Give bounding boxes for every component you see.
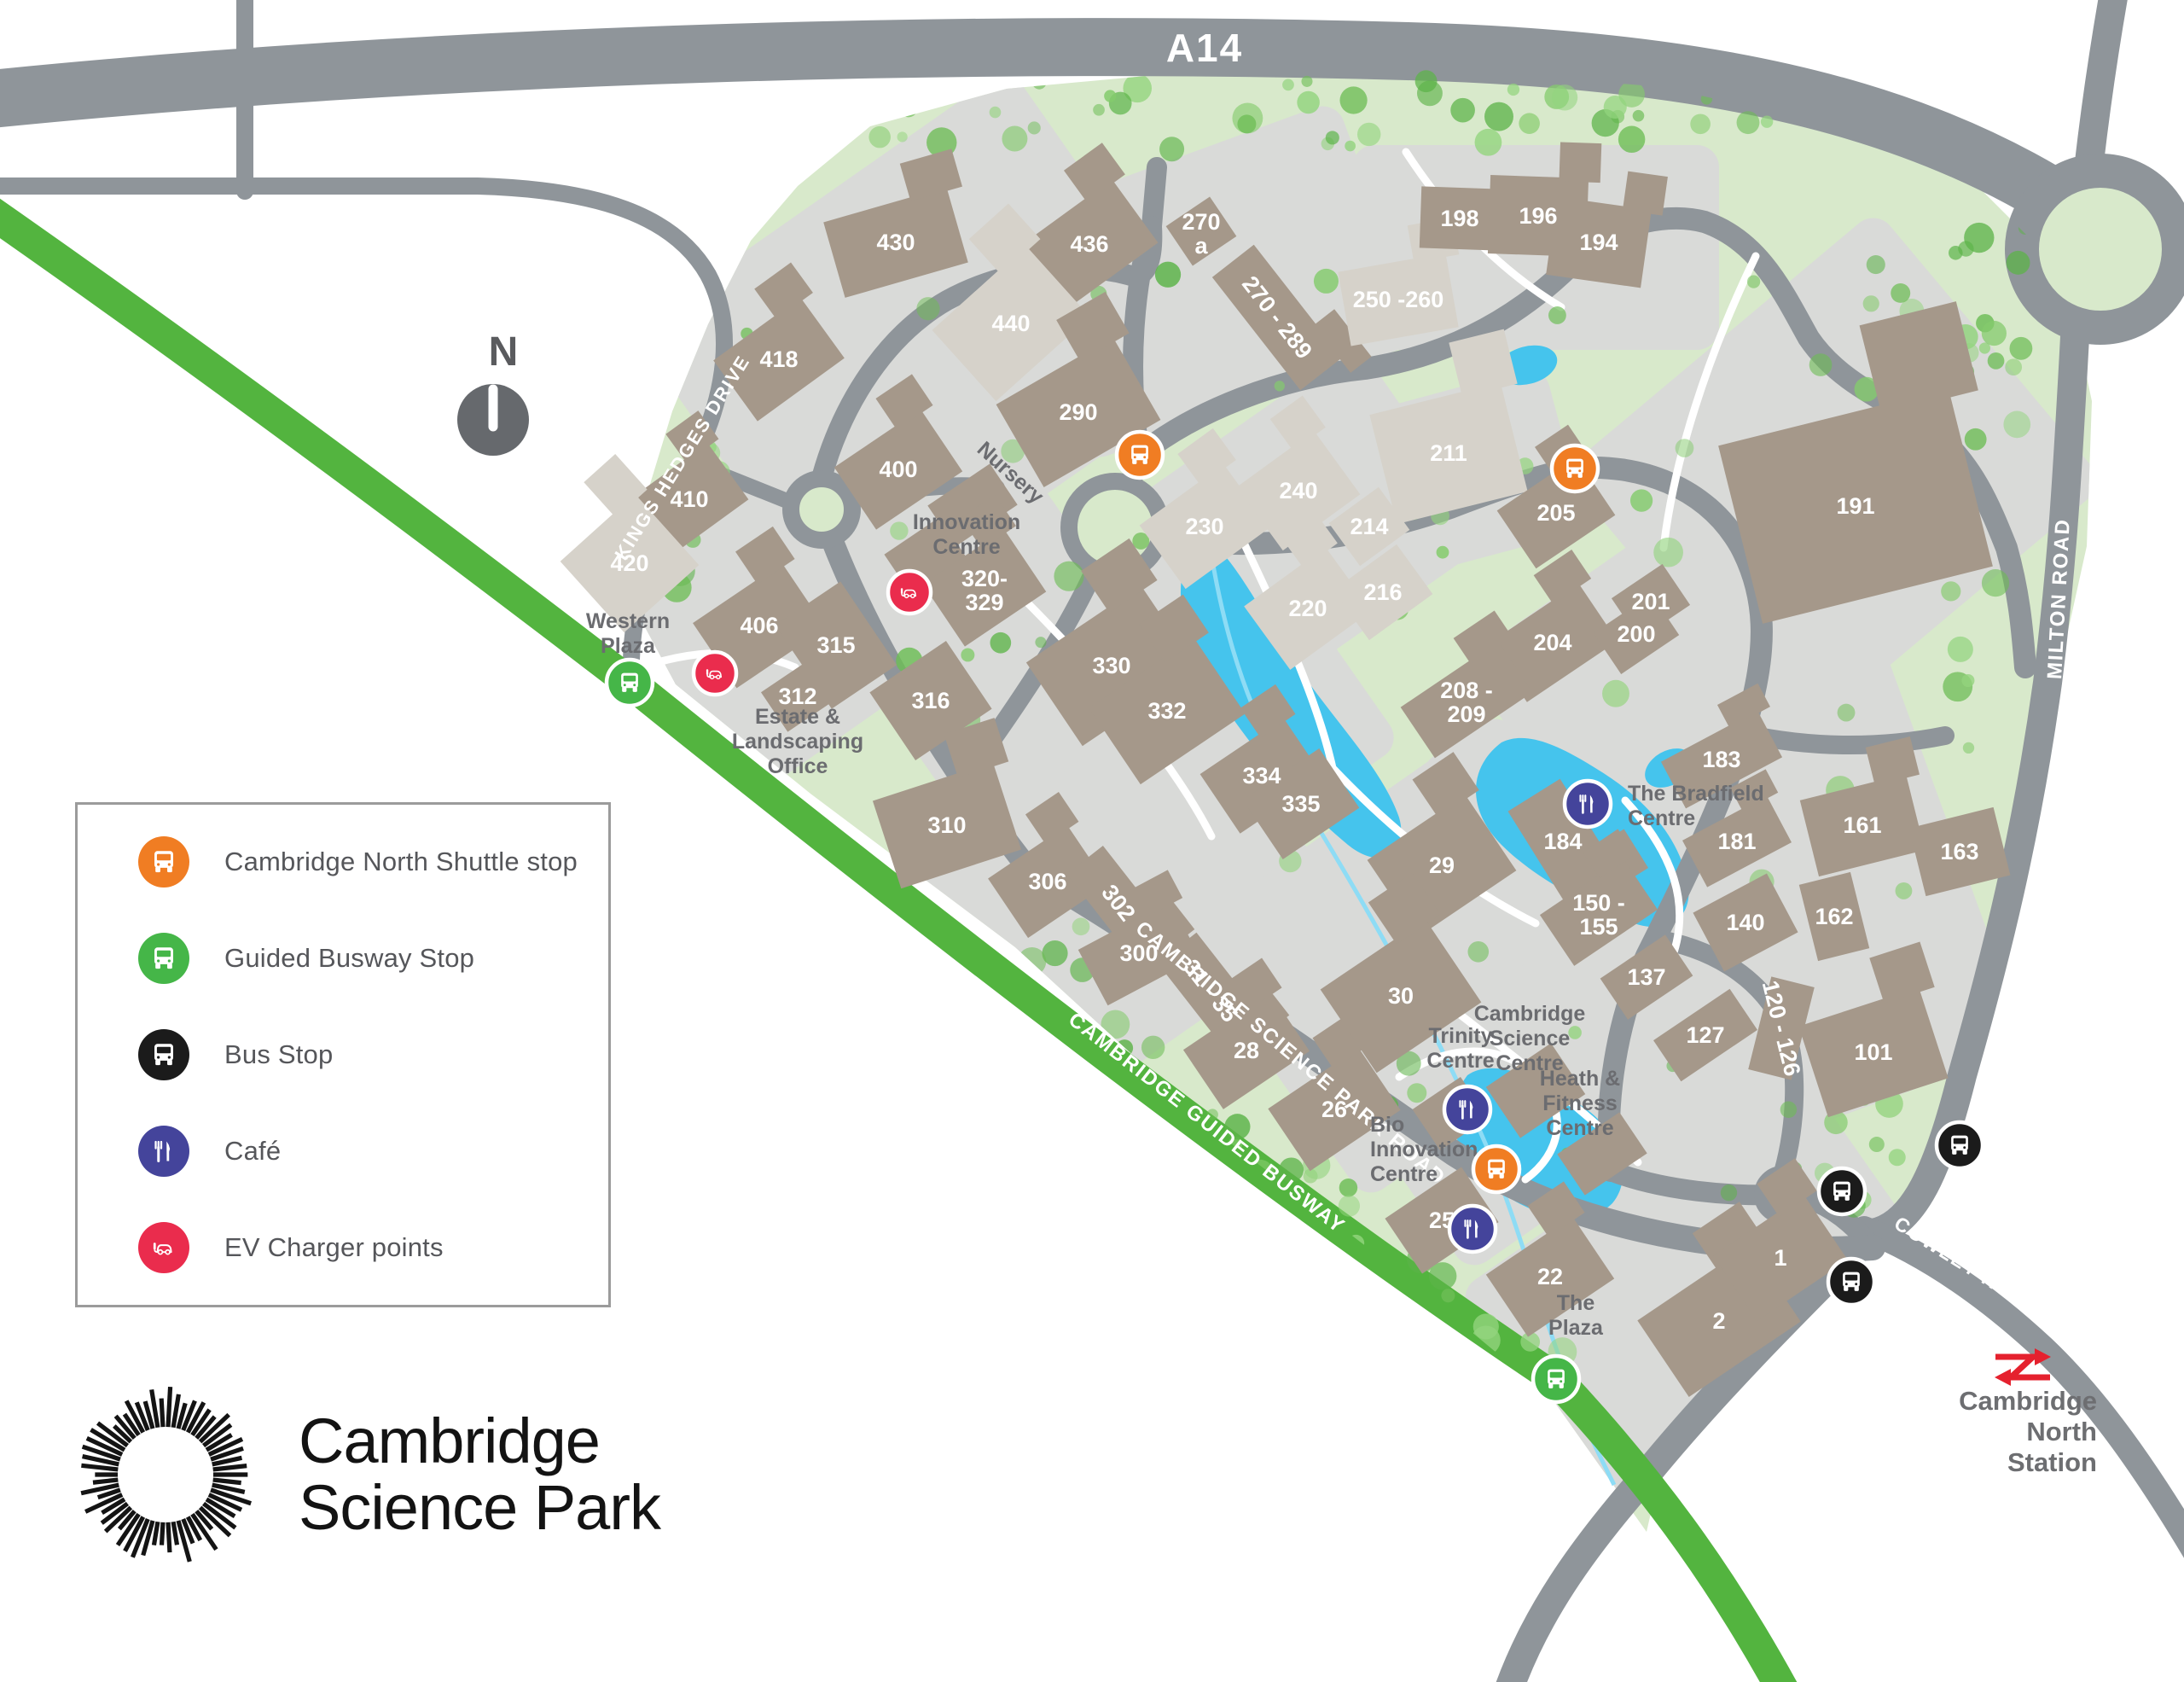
building-label: 140 <box>1726 910 1764 935</box>
building-label: 29 <box>1429 853 1455 878</box>
building-label: 161 <box>1843 812 1881 838</box>
bus-stop-icon <box>136 1027 192 1083</box>
cambridge-science-park-logo: Cambridge Science Park <box>67 1376 660 1574</box>
station-label: CambridgeNorthStation <box>1959 1386 2097 1477</box>
legend-item-cafe: Café <box>136 1123 608 1179</box>
shuttle-stop-icon <box>1473 1146 1519 1192</box>
building-label: 162 <box>1815 904 1853 929</box>
building-label: 137 <box>1627 964 1665 990</box>
building-label: 430 <box>876 230 915 255</box>
building-label: 201 <box>1631 589 1670 614</box>
building-label: 127 <box>1686 1022 1724 1048</box>
building-label: 22 <box>1537 1264 1563 1289</box>
building-label: 198 <box>1440 206 1478 231</box>
cafe-icon <box>1565 781 1611 827</box>
building-label: 163 <box>1940 839 1978 864</box>
shuttle-stop-icon <box>1552 445 1598 492</box>
building-label: 310 <box>927 812 966 838</box>
legend-item-shuttle: Cambridge North Shuttle stop <box>136 834 608 890</box>
place-label: Heath &FitnessCentre <box>1540 1067 1620 1140</box>
building-label: 334 <box>1242 763 1281 789</box>
building-label: 320-329 <box>961 566 1008 615</box>
ev-charger-icon <box>136 1219 192 1276</box>
building-label: 200 <box>1617 621 1655 647</box>
building-label: 181 <box>1717 829 1756 854</box>
building-label: 406 <box>740 613 778 638</box>
building-label: 28 <box>1234 1038 1259 1063</box>
building-label: 184 <box>1543 829 1582 854</box>
building-label: 183 <box>1702 747 1740 772</box>
building-label: 208 -209 <box>1440 678 1493 727</box>
building-label: 204 <box>1533 630 1571 655</box>
building-label: 194 <box>1579 230 1618 255</box>
legend-label: Guided Busway Stop <box>224 943 474 974</box>
ev-charger-icon <box>888 571 931 614</box>
bus-stop-icon <box>1819 1168 1865 1214</box>
bus-stop-icon <box>1937 1122 1983 1168</box>
building-label: 335 <box>1281 791 1320 817</box>
shuttle-stop-icon <box>1117 432 1163 478</box>
bus-stop-icon <box>1828 1259 1874 1305</box>
building-label: 2 <box>1712 1308 1725 1334</box>
building-label: 214 <box>1350 514 1388 539</box>
busway-bus-icon <box>136 930 192 987</box>
building-label: 332 <box>1147 698 1186 724</box>
building-label: 418 <box>759 346 798 372</box>
cafe-icon <box>1444 1086 1490 1132</box>
building-label: 191 <box>1836 493 1874 519</box>
map-legend: Cambridge North Shuttle stop Guided Busw… <box>75 802 611 1307</box>
logo-line2: Science Park <box>299 1475 660 1541</box>
building-label: 315 <box>816 632 855 658</box>
national-rail-icon <box>1995 1348 2051 1386</box>
legend-item-busway: Guided Busway Stop <box>136 930 608 987</box>
legend-label: Café <box>224 1136 281 1167</box>
legend-label: Bus Stop <box>224 1039 333 1070</box>
building-label: 196 <box>1519 203 1557 229</box>
logo-line1: Cambridge <box>299 1408 660 1475</box>
place-label: TrinityCentre <box>1426 1024 1494 1073</box>
building-label: 290 <box>1059 399 1097 425</box>
legend-label: EV Charger points <box>224 1232 444 1263</box>
building-label: 400 <box>879 457 917 482</box>
shuttle-bus-icon <box>136 834 192 890</box>
cafe-icon <box>1449 1206 1496 1252</box>
logo-starburst-icon <box>67 1376 264 1574</box>
building-label: 440 <box>991 311 1030 336</box>
legend-label: Cambridge North Shuttle stop <box>224 847 578 877</box>
building-label: 220 <box>1288 596 1327 621</box>
building-label: 230 <box>1185 514 1223 539</box>
building-label: 205 <box>1536 500 1575 526</box>
legend-item-bus: Bus Stop <box>136 1027 608 1083</box>
building-label: 150 -155 <box>1572 890 1625 940</box>
building-label: 30 <box>1388 983 1414 1009</box>
north-compass: N <box>457 329 529 456</box>
logo-wordmark: Cambridge Science Park <box>299 1408 660 1540</box>
building-label: 101 <box>1854 1039 1892 1065</box>
building-label: 250 -260 <box>1353 287 1444 312</box>
building-label: 216 <box>1363 579 1402 605</box>
building-label: 240 <box>1279 478 1317 503</box>
cambridge-science-park-map-page: 430436418410420440400290406315312316320-… <box>0 0 2184 1682</box>
building-label: 316 <box>911 688 950 713</box>
building-label: 410 <box>670 486 708 512</box>
cafe-icon <box>136 1123 192 1179</box>
building-label: 330 <box>1092 653 1130 678</box>
north-label: N <box>489 329 519 375</box>
busway-stop-icon <box>1533 1356 1579 1402</box>
building-label: 1 <box>1774 1245 1786 1271</box>
building-label: 436 <box>1070 231 1108 257</box>
road-label: A14 <box>1166 26 1243 70</box>
building-label: 306 <box>1028 869 1066 894</box>
legend-item-ev: EV Charger points <box>136 1219 608 1276</box>
busway-stop-icon <box>607 660 653 706</box>
building-label: 211 <box>1430 440 1467 466</box>
ev-charger-icon <box>694 652 736 695</box>
